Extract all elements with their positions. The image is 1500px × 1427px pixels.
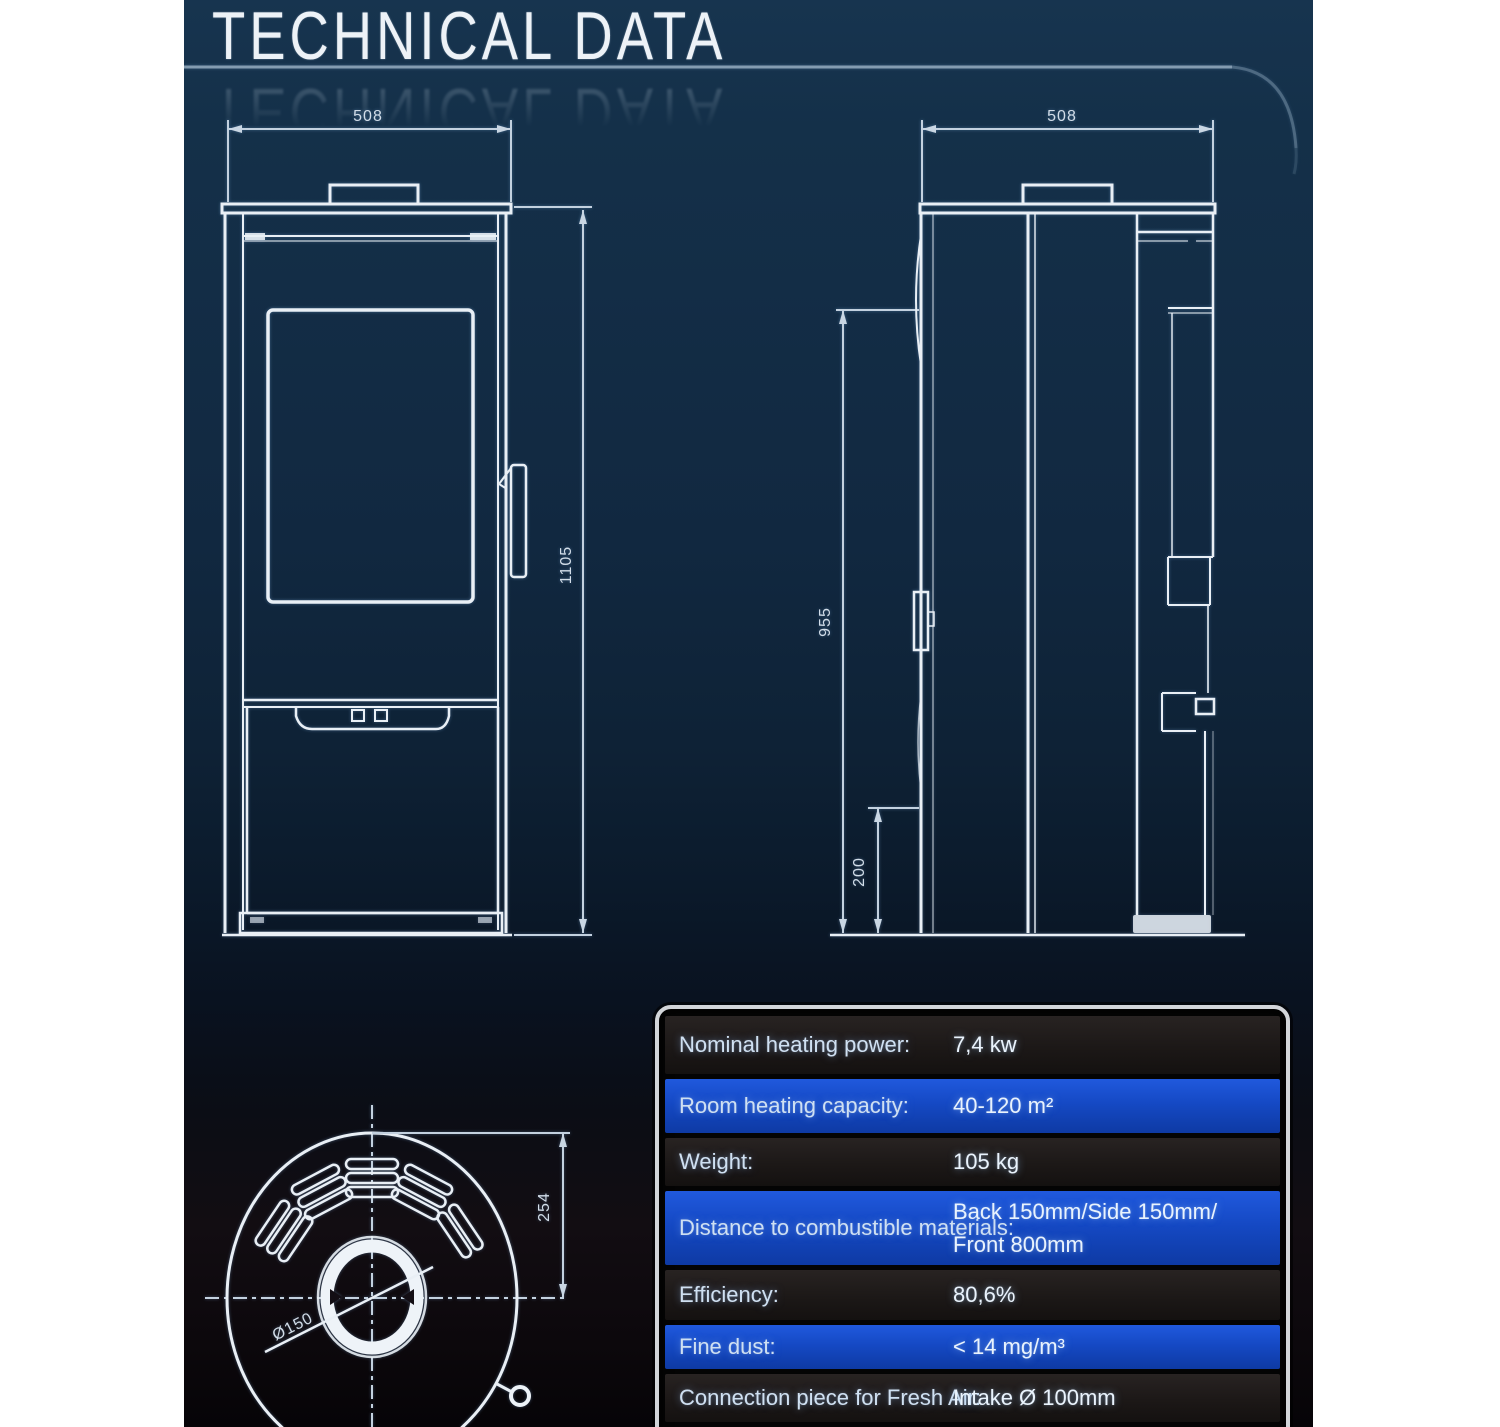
table-row: Distance to combustible materials: Back …	[665, 1191, 1280, 1265]
front-door-glass	[268, 310, 473, 602]
top-locking-knob	[497, 1384, 529, 1405]
side-base	[1133, 915, 1211, 933]
datasheet-page: TECHNICAL DATA TECHNICAL DATA 508	[0, 0, 1500, 1427]
side-depth-dimension: 508	[922, 108, 1213, 202]
top-radius-dimension: 254	[372, 1133, 570, 1298]
front-height-label: 1105	[558, 546, 575, 584]
side-clearance-dimension: 200	[851, 808, 919, 933]
row-value-line-2: Front 800mm	[953, 1228, 1217, 1261]
row-value: Back 150mm/Side 150mm/ Front 800mm	[953, 1195, 1217, 1261]
side-view-drawing: 508 955 200	[817, 108, 1245, 935]
row-label: Fine dust:	[679, 1334, 776, 1360]
row-label: Room heating capacity:	[679, 1093, 909, 1119]
front-storage-recess	[296, 707, 449, 729]
row-value: 7,4 kw	[953, 1032, 1017, 1058]
table-row: Nominal heating power: 7,4 kw	[665, 1016, 1280, 1074]
row-label: Connection piece for Fresh Air:	[679, 1385, 981, 1411]
row-value: Intake Ø 100mm	[953, 1385, 1116, 1411]
row-value: 80,6%	[953, 1282, 1015, 1308]
side-clearance-label: 200	[851, 857, 868, 887]
side-stove-outline	[830, 185, 1245, 935]
top-radius-label: 254	[536, 1192, 553, 1222]
side-depth-label: 508	[1047, 108, 1077, 125]
row-label: Efficiency:	[679, 1282, 779, 1308]
front-width-label: 508	[353, 108, 383, 125]
top-view-drawing: Ø150 254	[205, 1105, 570, 1427]
row-value-line-1: Back 150mm/Side 150mm/	[953, 1195, 1217, 1228]
front-door-handle	[499, 465, 526, 577]
side-door-handle	[914, 592, 934, 650]
front-base	[240, 913, 502, 933]
datasheet-content: TECHNICAL DATA TECHNICAL DATA 508	[184, 0, 1313, 1427]
front-view-drawing: 508 1105	[222, 108, 592, 935]
side-height-label: 955	[817, 607, 834, 637]
side-rear-bracket	[1162, 693, 1214, 731]
table-row: Fine dust: < 14 mg/m³	[665, 1325, 1280, 1369]
table-row: Room heating capacity: 40-120 m²	[665, 1079, 1280, 1133]
row-value: 105 kg	[953, 1149, 1019, 1175]
front-width-dimension: 508	[228, 108, 511, 202]
title-underline	[184, 67, 1296, 174]
row-label: Nominal heating power:	[679, 1032, 910, 1058]
table-row: Connection piece for Fresh Air: Intake Ø…	[665, 1374, 1280, 1422]
side-height-dimension: 955	[817, 310, 919, 933]
table-row: Efficiency: 80,6%	[665, 1270, 1280, 1320]
spec-table: Nominal heating power: 7,4 kw Room heati…	[655, 1005, 1290, 1427]
row-label: Weight:	[679, 1149, 753, 1175]
row-value: < 14 mg/m³	[953, 1334, 1065, 1360]
table-row: Weight: 105 kg	[665, 1138, 1280, 1186]
front-stove-outline	[222, 185, 526, 935]
row-value: 40-120 m²	[953, 1093, 1053, 1119]
